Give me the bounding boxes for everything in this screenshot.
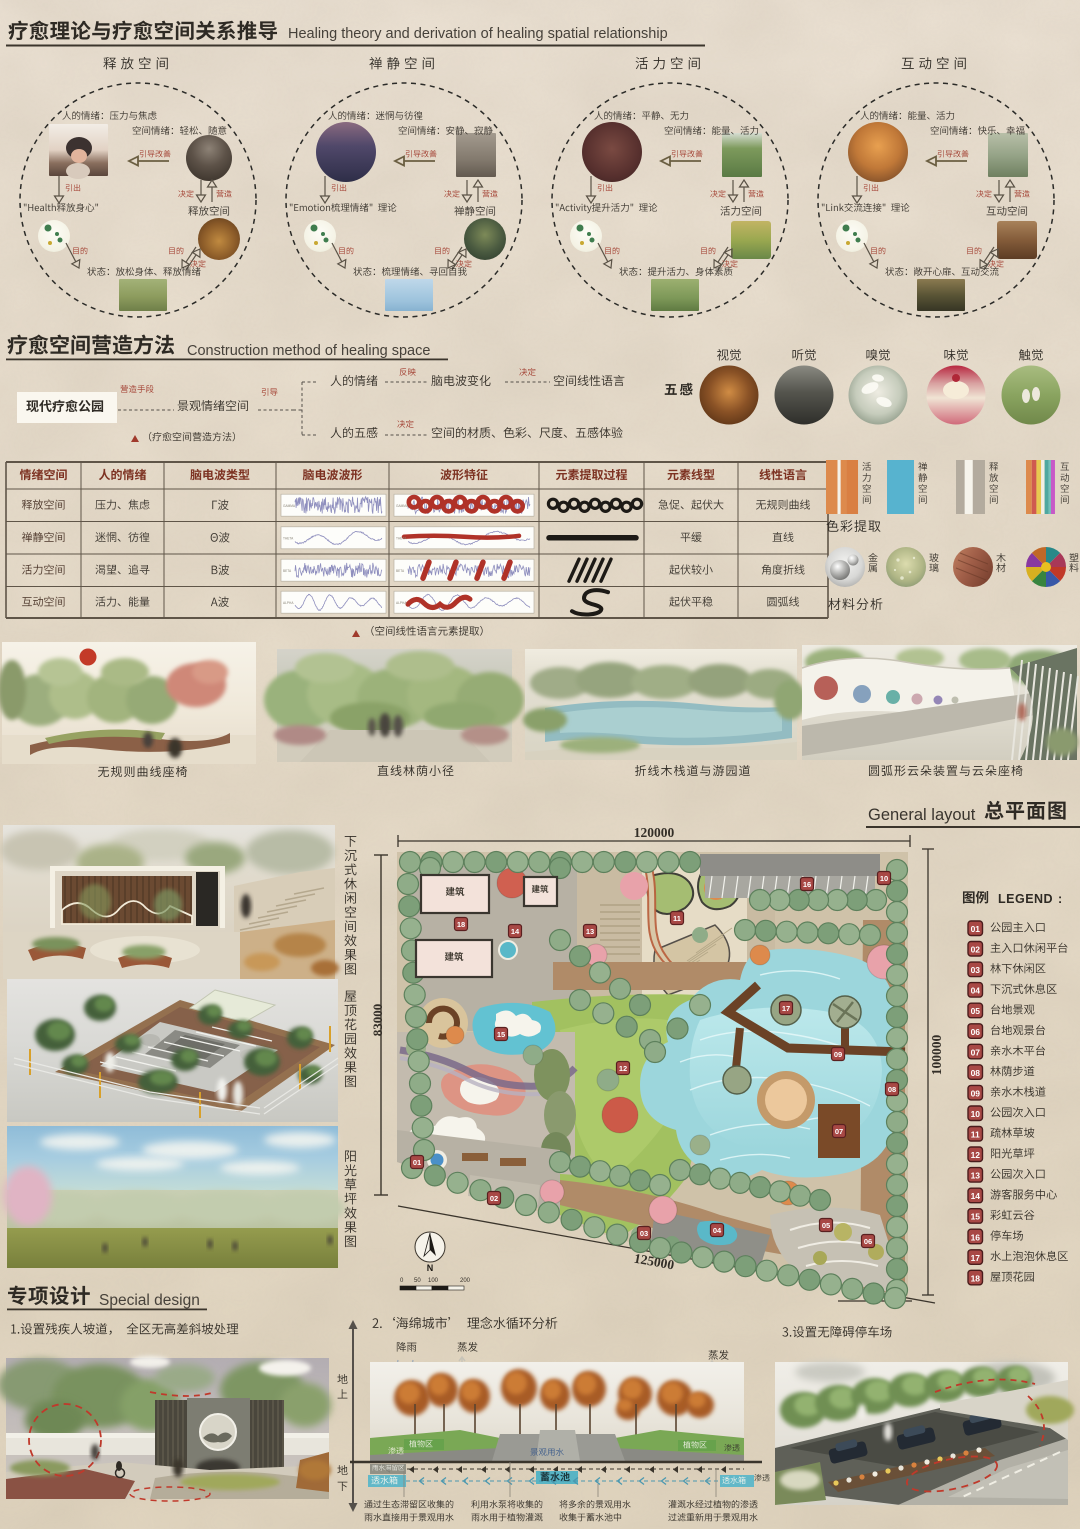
svg-text:05: 05 bbox=[822, 1221, 830, 1230]
svg-text:12: 12 bbox=[971, 1150, 981, 1160]
svg-text:BETA: BETA bbox=[396, 569, 405, 573]
svg-text:16: 16 bbox=[803, 880, 811, 889]
svg-text:04: 04 bbox=[713, 1226, 722, 1235]
svg-text:08: 08 bbox=[971, 1068, 981, 1078]
svg-text:ALPHA: ALPHA bbox=[396, 601, 407, 605]
svg-text:18: 18 bbox=[457, 920, 465, 929]
svg-text:83000: 83000 bbox=[370, 1004, 385, 1037]
svg-text:11: 11 bbox=[971, 1130, 980, 1140]
svg-text:12: 12 bbox=[619, 1064, 627, 1073]
svg-text:Special design: Special design bbox=[99, 1292, 200, 1309]
svg-text:N: N bbox=[427, 1263, 434, 1273]
svg-text::: : bbox=[1058, 892, 1062, 906]
svg-text:GAMMA: GAMMA bbox=[283, 504, 296, 508]
svg-text:08: 08 bbox=[888, 1085, 896, 1094]
svg-text:Construction method of healing: Construction method of healing space bbox=[187, 343, 430, 359]
svg-text:06: 06 bbox=[971, 1027, 981, 1037]
svg-text:14: 14 bbox=[511, 927, 520, 936]
svg-text:16: 16 bbox=[971, 1232, 981, 1242]
svg-text:10: 10 bbox=[971, 1109, 981, 1119]
svg-text:09: 09 bbox=[834, 1050, 842, 1059]
svg-text:ALPHA: ALPHA bbox=[283, 601, 294, 605]
svg-text:11: 11 bbox=[673, 914, 681, 923]
svg-text:05: 05 bbox=[971, 1006, 981, 1016]
svg-text:10: 10 bbox=[880, 874, 888, 883]
svg-text:06: 06 bbox=[864, 1237, 872, 1246]
svg-text:17: 17 bbox=[971, 1253, 981, 1263]
svg-text:04: 04 bbox=[971, 986, 981, 996]
svg-text:07: 07 bbox=[835, 1127, 843, 1136]
svg-text:GAMMA: GAMMA bbox=[396, 504, 409, 508]
svg-text:02: 02 bbox=[490, 1194, 498, 1203]
svg-text:BETA: BETA bbox=[283, 569, 292, 573]
svg-text:50: 50 bbox=[414, 1278, 421, 1284]
svg-text:03: 03 bbox=[640, 1229, 648, 1238]
svg-text:07: 07 bbox=[971, 1047, 981, 1057]
svg-text:Healing theory and derivation: Healing theory and derivation of healing… bbox=[288, 26, 668, 42]
svg-text:15: 15 bbox=[971, 1212, 981, 1222]
svg-text:13: 13 bbox=[971, 1171, 981, 1181]
svg-text:THETA: THETA bbox=[396, 536, 407, 540]
svg-text:09: 09 bbox=[971, 1088, 981, 1098]
svg-text:THETA: THETA bbox=[283, 536, 294, 540]
svg-text:13: 13 bbox=[586, 927, 594, 936]
svg-text:18: 18 bbox=[971, 1273, 981, 1283]
svg-text:17: 17 bbox=[782, 1004, 790, 1013]
svg-text:General layout: General layout bbox=[868, 806, 976, 824]
svg-text:03: 03 bbox=[971, 965, 981, 975]
svg-text:14: 14 bbox=[971, 1191, 981, 1201]
svg-text:200: 200 bbox=[460, 1278, 471, 1284]
svg-text:LEGEND: LEGEND bbox=[998, 892, 1053, 906]
svg-text:01: 01 bbox=[971, 924, 981, 934]
svg-text:100: 100 bbox=[428, 1278, 439, 1284]
svg-text:120000: 120000 bbox=[634, 825, 675, 840]
svg-text:15: 15 bbox=[497, 1030, 505, 1039]
svg-text:100000: 100000 bbox=[929, 1035, 944, 1076]
svg-text:01: 01 bbox=[413, 1158, 421, 1167]
svg-text:02: 02 bbox=[971, 945, 981, 955]
